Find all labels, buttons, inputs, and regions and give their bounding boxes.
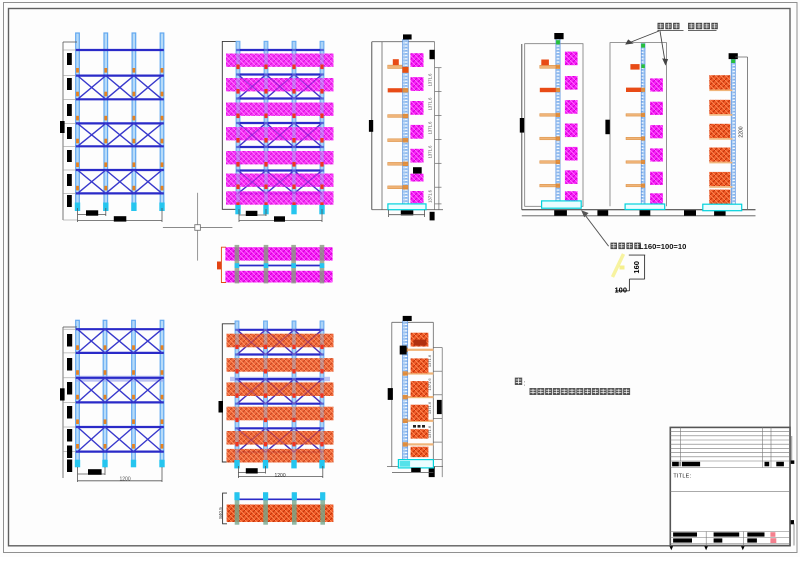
svg-text:1371.6: 1371.6 (428, 189, 433, 202)
svg-text:1200: 1200 (275, 473, 286, 479)
svg-text:1371.6: 1371.6 (427, 401, 432, 414)
svg-text:1371.6: 1371.6 (428, 145, 433, 158)
svg-text:1371.6: 1371.6 (428, 121, 433, 134)
svg-text:TITLE:: TITLE: (673, 474, 691, 480)
svg-text:1371.6: 1371.6 (427, 425, 432, 438)
svg-text:2200: 2200 (739, 126, 745, 137)
svg-text:L160=100=10: L160=100=10 (639, 242, 686, 251)
svg-text:160: 160 (632, 261, 641, 274)
svg-text:1371.6: 1371.6 (428, 73, 433, 86)
svg-text:840.5: 840.5 (218, 507, 223, 519)
svg-text:1371.6: 1371.6 (427, 378, 432, 391)
svg-text:1200: 1200 (120, 476, 131, 482)
svg-text:1371.6: 1371.6 (427, 354, 432, 367)
svg-text:100: 100 (615, 285, 628, 294)
svg-text:1371.6: 1371.6 (428, 97, 433, 110)
svg-text::: : (524, 381, 526, 388)
